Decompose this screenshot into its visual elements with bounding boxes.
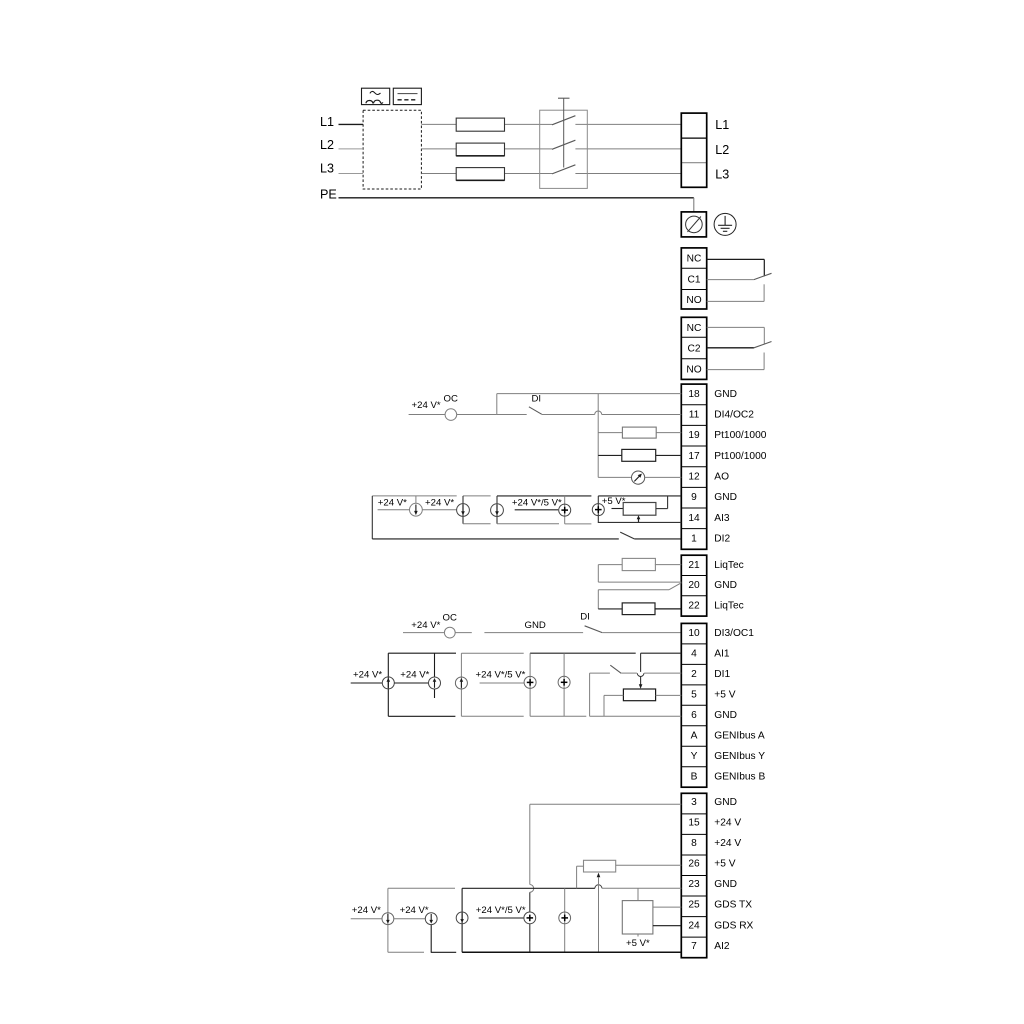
svg-text:+24 V*: +24 V* xyxy=(411,620,440,631)
svg-text:C2: C2 xyxy=(687,344,700,355)
svg-text:PE: PE xyxy=(320,187,337,201)
svg-text:+5 V*: +5 V* xyxy=(626,938,650,949)
svg-text:15: 15 xyxy=(688,818,700,829)
svg-text:+24 V*: +24 V* xyxy=(412,400,441,411)
svg-text:DI3/OC1: DI3/OC1 xyxy=(714,628,754,639)
svg-text:NC: NC xyxy=(687,254,702,265)
svg-text:9: 9 xyxy=(691,492,697,503)
svg-text:Y: Y xyxy=(691,751,698,762)
svg-text:+5 V: +5 V xyxy=(714,859,735,870)
svg-text:+24 V*: +24 V* xyxy=(352,905,381,916)
svg-text:2: 2 xyxy=(691,669,697,680)
svg-text:NC: NC xyxy=(687,323,702,334)
svg-text:+24 V*/5 V*: +24 V*/5 V* xyxy=(512,497,562,508)
svg-text:L2: L2 xyxy=(715,143,729,157)
svg-text:NO: NO xyxy=(686,295,701,306)
svg-text:19: 19 xyxy=(688,430,700,441)
svg-text:17: 17 xyxy=(688,451,700,462)
svg-text:+24 V: +24 V xyxy=(714,838,741,849)
svg-text:AI2: AI2 xyxy=(714,941,730,952)
svg-text:DI: DI xyxy=(532,394,542,405)
svg-text:B: B xyxy=(691,771,698,782)
svg-text:L2: L2 xyxy=(320,138,334,152)
svg-text:DI4/OC2: DI4/OC2 xyxy=(714,410,754,421)
svg-text:23: 23 xyxy=(688,879,700,890)
svg-text:AI1: AI1 xyxy=(714,649,730,660)
svg-text:L1: L1 xyxy=(715,118,729,132)
svg-text:AI3: AI3 xyxy=(714,513,730,524)
svg-text:Pt100/1000: Pt100/1000 xyxy=(714,430,766,441)
svg-text:GENIbus B: GENIbus B xyxy=(714,771,765,782)
svg-text:DI: DI xyxy=(580,612,590,623)
svg-text:6: 6 xyxy=(691,710,697,721)
svg-text:GND: GND xyxy=(714,389,737,400)
svg-text:GND: GND xyxy=(714,797,737,808)
svg-text:4: 4 xyxy=(691,649,697,660)
svg-text:+24 V*: +24 V* xyxy=(378,497,407,508)
svg-text:12: 12 xyxy=(688,472,700,483)
svg-text:5: 5 xyxy=(691,690,697,701)
svg-text:+5 V: +5 V xyxy=(714,690,735,701)
svg-text:+24 V*: +24 V* xyxy=(400,905,429,916)
svg-text:3: 3 xyxy=(691,797,697,808)
svg-text:+24 V*: +24 V* xyxy=(425,497,454,508)
svg-text:20: 20 xyxy=(688,580,700,591)
svg-text:GND: GND xyxy=(525,620,546,631)
svg-text:OC: OC xyxy=(444,393,458,404)
svg-text:GDS RX: GDS RX xyxy=(714,920,753,931)
svg-text:25: 25 xyxy=(688,900,700,911)
svg-text:11: 11 xyxy=(689,410,700,421)
svg-text:10: 10 xyxy=(688,628,700,639)
svg-text:7: 7 xyxy=(691,941,697,952)
svg-text:GND: GND xyxy=(714,492,737,503)
svg-text:+24 V*: +24 V* xyxy=(353,670,382,681)
svg-text:Pt100/1000: Pt100/1000 xyxy=(714,451,766,462)
svg-text:A: A xyxy=(691,731,698,742)
svg-text:8: 8 xyxy=(691,838,697,849)
svg-text:LiqTec: LiqTec xyxy=(714,560,743,571)
svg-text:DI1: DI1 xyxy=(714,669,730,680)
svg-text:L1: L1 xyxy=(320,115,334,129)
svg-text:C1: C1 xyxy=(687,274,700,285)
svg-text:NO: NO xyxy=(686,365,701,376)
svg-text:GND: GND xyxy=(714,710,737,721)
svg-text:+24 V*: +24 V* xyxy=(400,670,429,681)
svg-text:+24 V*/5 V*: +24 V*/5 V* xyxy=(476,670,526,681)
svg-text:GENIbus A: GENIbus A xyxy=(714,731,765,742)
svg-text:14: 14 xyxy=(688,513,700,524)
svg-text:GND: GND xyxy=(714,580,737,591)
svg-text:L3: L3 xyxy=(715,167,729,181)
svg-text:+24 V*/5 V*: +24 V*/5 V* xyxy=(476,905,526,916)
svg-text:GND: GND xyxy=(714,879,737,890)
svg-text:+5 V*: +5 V* xyxy=(602,496,626,507)
svg-text:L3: L3 xyxy=(320,162,334,176)
svg-text:24: 24 xyxy=(688,920,700,931)
svg-text:1: 1 xyxy=(691,533,697,544)
svg-text:GENIbus Y: GENIbus Y xyxy=(714,751,765,762)
svg-text:22: 22 xyxy=(688,600,700,611)
svg-text:DI2: DI2 xyxy=(714,533,730,544)
svg-text:OC: OC xyxy=(443,612,457,623)
svg-text:21: 21 xyxy=(688,560,700,571)
svg-text:+24 V: +24 V xyxy=(714,818,741,829)
svg-text:LiqTec: LiqTec xyxy=(714,600,743,611)
svg-text:18: 18 xyxy=(688,389,700,400)
svg-text:AO: AO xyxy=(714,472,729,483)
svg-text:GDS TX: GDS TX xyxy=(714,900,752,911)
svg-text:26: 26 xyxy=(688,859,700,870)
